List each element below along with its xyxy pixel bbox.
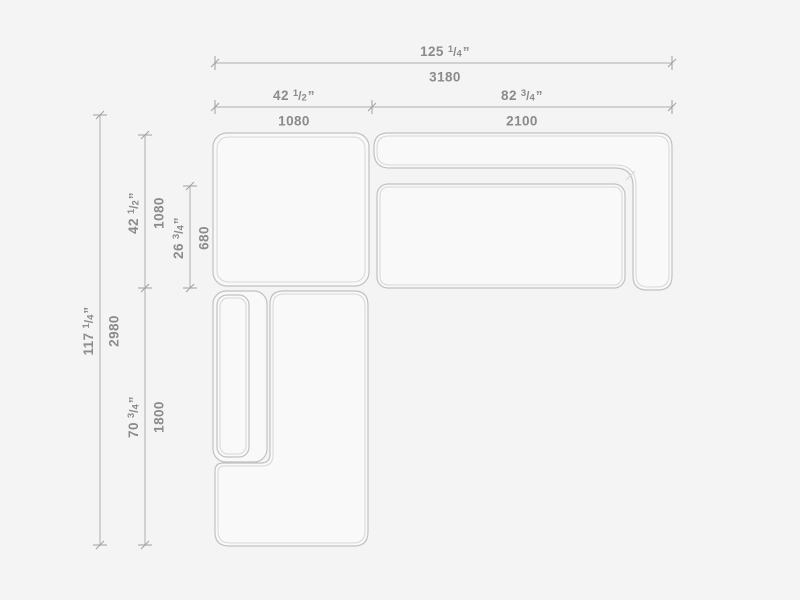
dim-right-width-mm: 2100 [506, 114, 538, 128]
dim-total-depth-mm: 2980 [107, 315, 121, 347]
dim-left-width-mm: 1080 [278, 114, 310, 128]
dim-total-width-label: 1251/4” 3180 [420, 42, 470, 84]
dimension-drawing-canvas: 1251/4” 3180 421/2” 1080 823/4” 2100 117… [0, 0, 800, 600]
corner-module [213, 133, 369, 286]
sofa-plan-drawing [0, 0, 800, 600]
chaise-armrest-outline [213, 291, 267, 462]
dim-right-width-label: 823/4” 2100 [501, 86, 543, 128]
dim-upper-depth-label: 421/2” 1080 [124, 192, 166, 234]
right-module-seat-cushion [377, 184, 625, 288]
dim-lower-depth-inches: 703/4” [124, 396, 143, 438]
dim-total-depth-label: 1171/4” 2980 [79, 306, 121, 355]
dim-lower-depth-mm: 1800 [152, 401, 166, 433]
right-sofa-module [374, 133, 672, 290]
dim-left-width-inches: 421/2” [273, 86, 315, 105]
corner-module-outline [213, 133, 369, 286]
dim-lower-depth-label: 703/4” 1800 [124, 396, 166, 438]
chaise-module [213, 291, 368, 546]
dimension-ticks [93, 56, 676, 549]
dim-seat-depth-inches: 263/4” [169, 217, 188, 259]
dim-seat-depth-label: 263/4” 680 [169, 217, 211, 259]
dim-left-width-label: 421/2” 1080 [273, 86, 315, 128]
dim-upper-depth-mm: 1080 [152, 197, 166, 229]
dim-total-depth-inches: 1171/4” [79, 306, 98, 355]
dim-total-width-inches: 1251/4” [420, 42, 470, 61]
dim-upper-depth-inches: 421/2” [124, 192, 143, 234]
dim-right-width-inches: 823/4” [501, 86, 543, 105]
dim-seat-depth-mm: 680 [197, 226, 211, 250]
dim-total-width-mm: 3180 [429, 70, 461, 84]
